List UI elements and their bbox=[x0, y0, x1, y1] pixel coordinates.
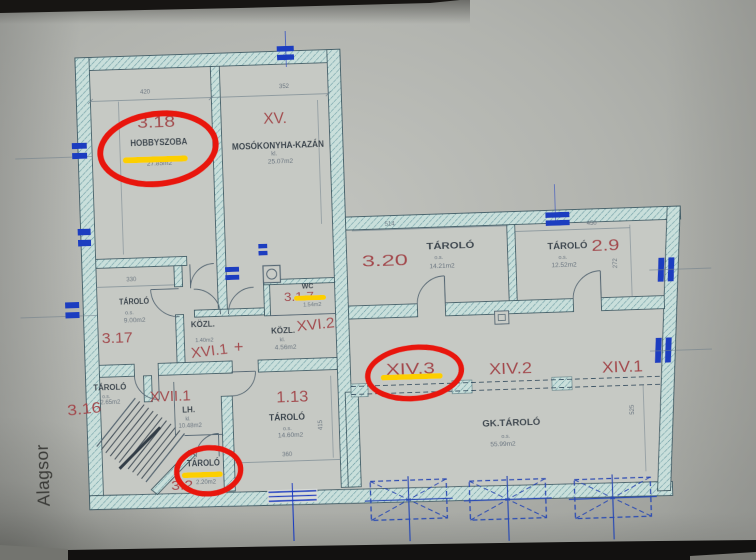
svg-text:o.s.: o.s. bbox=[558, 255, 568, 261]
svg-text:55.99m2: 55.99m2 bbox=[490, 441, 516, 449]
svg-text:420: 420 bbox=[140, 90, 151, 96]
svg-text:LH.: LH. bbox=[182, 405, 195, 414]
svg-text:3.17: 3.17 bbox=[101, 329, 133, 347]
svg-text:XIV.1: XIV.1 bbox=[602, 358, 644, 376]
svg-text:TÁROLÓ: TÁROLÓ bbox=[93, 382, 126, 392]
svg-text:330: 330 bbox=[126, 277, 137, 283]
svg-text:3.20: 3.20 bbox=[362, 252, 409, 271]
svg-text:kl.: kl. bbox=[271, 151, 278, 157]
svg-text:2.20m2: 2.20m2 bbox=[196, 480, 217, 487]
svg-text:1.13: 1.13 bbox=[276, 388, 309, 406]
svg-text:14.21m2: 14.21m2 bbox=[429, 263, 455, 271]
svg-text:o.s.: o.s. bbox=[434, 255, 444, 261]
svg-text:272: 272 bbox=[613, 257, 619, 268]
svg-text:o.s.: o.s. bbox=[125, 310, 135, 316]
svg-text:HOBBYSZOBA: HOBBYSZOBA bbox=[130, 136, 187, 149]
svg-text:25.07m2: 25.07m2 bbox=[268, 158, 294, 166]
svg-text:GK.TÁROLÓ: GK.TÁROLÓ bbox=[482, 416, 540, 430]
svg-text:415: 415 bbox=[318, 419, 324, 430]
svg-text:TÁROLÓ: TÁROLÓ bbox=[547, 239, 587, 252]
svg-text:TÁROLÓ: TÁROLÓ bbox=[426, 239, 474, 253]
svg-text:o.s.: o.s. bbox=[501, 434, 511, 440]
svg-text:2.9: 2.9 bbox=[591, 237, 620, 255]
svg-text:525: 525 bbox=[630, 404, 636, 415]
svg-text:KÖZL.: KÖZL. bbox=[271, 326, 295, 336]
svg-text:3.16: 3.16 bbox=[66, 399, 102, 419]
svg-text:KÖZL.: KÖZL. bbox=[191, 320, 215, 330]
svg-text:XV.: XV. bbox=[263, 110, 287, 128]
svg-text:1.54m2: 1.54m2 bbox=[303, 302, 322, 309]
svg-text:10.48m2: 10.48m2 bbox=[178, 423, 202, 430]
svg-text:352: 352 bbox=[279, 84, 290, 90]
svg-text:14.60m2: 14.60m2 bbox=[278, 432, 304, 440]
svg-text:514: 514 bbox=[385, 221, 396, 227]
svg-text:2.65m2: 2.65m2 bbox=[100, 400, 121, 407]
svg-text:XIV.2: XIV.2 bbox=[489, 360, 533, 378]
svg-text:kl.: kl. bbox=[185, 416, 190, 422]
svg-text:9.00m2: 9.00m2 bbox=[124, 317, 146, 325]
svg-text:Alagsor: Alagsor bbox=[32, 444, 54, 507]
svg-text:XVII.1: XVII.1 bbox=[149, 388, 191, 405]
svg-text:360: 360 bbox=[282, 452, 293, 458]
svg-text:kl.: kl. bbox=[280, 337, 286, 343]
svg-text:TÁROLÓ: TÁROLÓ bbox=[119, 295, 150, 307]
svg-text:TÁROLÓ: TÁROLÓ bbox=[187, 456, 220, 468]
svg-text:12.52m2: 12.52m2 bbox=[551, 261, 577, 269]
svg-text:TÁROLÓ: TÁROLÓ bbox=[269, 411, 305, 424]
svg-text:450: 450 bbox=[587, 221, 598, 227]
svg-text:4.56m2: 4.56m2 bbox=[275, 344, 297, 352]
